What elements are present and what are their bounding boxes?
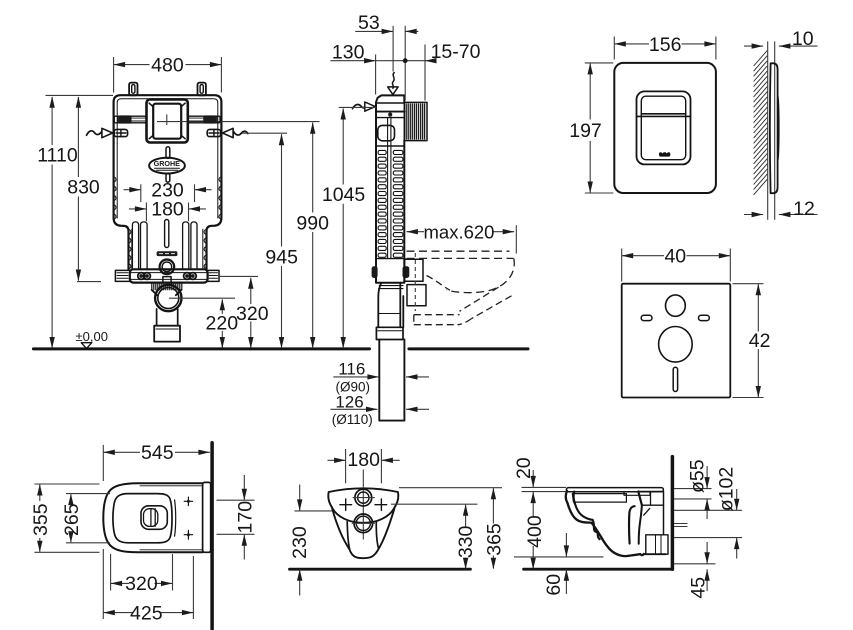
svg-text:365: 365 [483,523,505,556]
svg-text:126: 126 [335,392,363,411]
svg-text:45: 45 [688,577,710,599]
svg-text:330: 330 [455,525,477,558]
svg-text:220: 220 [206,312,239,334]
svg-text:10: 10 [792,28,814,50]
svg-text:42: 42 [749,330,771,352]
svg-text:170: 170 [234,501,256,534]
svg-text:197: 197 [569,120,602,142]
svg-text:400: 400 [524,515,546,548]
svg-text:180: 180 [347,449,380,471]
svg-text:230: 230 [289,526,311,559]
svg-text:180: 180 [151,199,184,221]
svg-text:320: 320 [125,573,158,595]
svg-text:480: 480 [151,54,184,76]
svg-text:ø102: ø102 [715,467,737,511]
svg-text:130: 130 [332,41,365,63]
svg-text:425: 425 [130,602,163,624]
svg-text:20: 20 [513,457,535,479]
svg-text:GROHE: GROHE [154,159,181,168]
svg-text:116: 116 [338,359,365,378]
svg-text:12: 12 [793,198,815,220]
svg-text:±0,00: ±0,00 [76,329,108,344]
svg-text:40: 40 [664,246,686,268]
svg-text:355: 355 [30,503,52,536]
svg-text:53: 53 [358,12,380,34]
svg-text:945: 945 [265,246,298,268]
svg-text:830: 830 [67,176,100,198]
svg-text:990: 990 [296,212,329,234]
svg-text:(Ø110): (Ø110) [332,412,373,427]
svg-text:ø55: ø55 [687,459,709,493]
svg-text:1110: 1110 [37,145,78,167]
svg-text:15-70: 15-70 [431,41,481,63]
svg-text:1045: 1045 [322,184,366,206]
svg-text:60: 60 [543,574,565,596]
svg-text:265: 265 [61,503,83,536]
svg-text:545: 545 [141,442,174,464]
svg-text:156: 156 [649,34,682,56]
svg-text:max.620: max.620 [424,221,495,242]
svg-text:320: 320 [236,303,269,325]
